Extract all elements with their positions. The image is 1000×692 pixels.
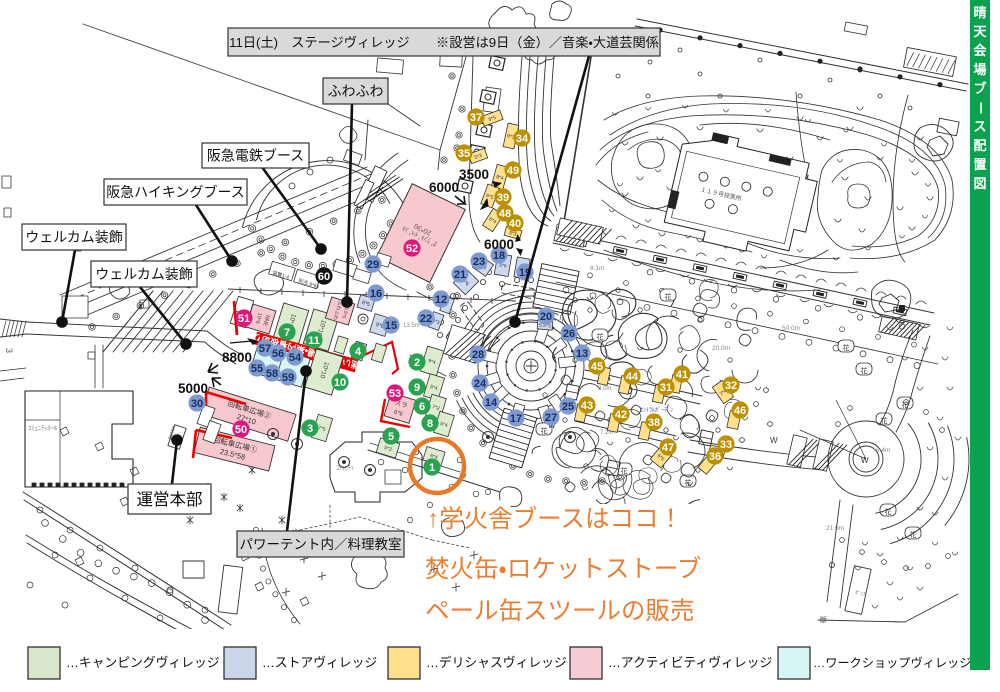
svg-text:ｺﾐｭﾆﾃｨﾎｰﾙ: ｺﾐｭﾆﾃｨﾎｰﾙ (28, 424, 58, 432)
svg-text:56: 56 (272, 348, 284, 360)
svg-text:3: 3 (307, 423, 313, 435)
svg-text:運営本部: 運営本部 (137, 490, 203, 509)
svg-text:8: 8 (427, 418, 433, 430)
svg-text:6: 6 (419, 401, 425, 413)
svg-text:33: 33 (720, 439, 732, 451)
svg-text:20: 20 (540, 311, 552, 323)
svg-text:ｺﾐｭﾆﾃｨ: ｺﾐｭﾆﾃｨ (336, 465, 354, 472)
svg-text:W: W (770, 436, 778, 445)
svg-text:51: 51 (238, 313, 250, 325)
svg-text:48: 48 (499, 208, 511, 220)
svg-text:花: 花 (665, 292, 672, 301)
svg-text:花: 花 (597, 332, 604, 341)
svg-text:図: 図 (973, 176, 986, 191)
svg-text:1: 1 (429, 462, 435, 474)
svg-text:2: 2 (414, 357, 420, 369)
svg-text:37: 37 (470, 112, 482, 124)
svg-text:44: 44 (626, 371, 639, 383)
svg-text:24: 24 (474, 378, 487, 390)
svg-text:5: 5 (388, 431, 394, 443)
svg-text:配: 配 (973, 138, 986, 153)
svg-text:11日(土) ステージヴィレッジ ※設営は9日（金）／音楽: 11日(土) ステージヴィレッジ ※設営は9日（金）／音楽・大道芸関係 (229, 34, 659, 50)
svg-text:38: 38 (648, 417, 660, 429)
svg-text:43: 43 (581, 400, 593, 412)
svg-text:6.4m: 6.4m (876, 447, 890, 454)
svg-text:30: 30 (191, 398, 203, 410)
svg-text:50: 50 (235, 424, 247, 436)
svg-text:9: 9 (414, 382, 420, 394)
svg-text:46: 46 (734, 405, 746, 417)
svg-text:41: 41 (676, 369, 688, 381)
svg-text:45: 45 (591, 361, 603, 373)
svg-text:会: 会 (973, 43, 987, 58)
svg-text:20.0m: 20.0m (712, 345, 730, 352)
svg-text:23: 23 (473, 256, 485, 268)
svg-text:6000: 6000 (484, 237, 514, 252)
svg-text:8800: 8800 (222, 350, 252, 365)
svg-text:…キャンピングヴィレッジ: …キャンピングヴィレッジ (66, 655, 220, 670)
svg-text:12: 12 (435, 294, 447, 306)
svg-text:49: 49 (507, 165, 519, 177)
svg-text:花: 花 (685, 478, 692, 487)
svg-text:ペール缶スツールの販売: ペール缶スツールの販売 (425, 597, 695, 625)
svg-text:57: 57 (259, 343, 271, 355)
svg-text:14: 14 (485, 397, 498, 409)
svg-text:↑学火舎ブースはココ！: ↑学火舎ブースはココ！ (427, 505, 683, 533)
svg-text:花: 花 (621, 466, 628, 475)
svg-text:6000: 6000 (429, 180, 459, 195)
svg-text:32: 32 (725, 380, 737, 392)
svg-text:21.0m: 21.0m (826, 525, 844, 532)
svg-text:10: 10 (334, 377, 346, 389)
svg-text:3: 3 (4, 348, 14, 353)
svg-text:ス: ス (973, 119, 986, 134)
svg-text:28: 28 (472, 349, 484, 361)
svg-text:55: 55 (251, 363, 263, 375)
svg-text:阪急電鉄ブース: 阪急電鉄ブース (207, 148, 304, 164)
svg-text:パワーテント内／料理教室: パワーテント内／料理教室 (240, 537, 402, 552)
svg-text:16: 16 (370, 288, 382, 300)
svg-text:8.1m: 8.1m (590, 265, 604, 272)
svg-text:場: 場 (973, 62, 986, 77)
svg-text:…アクティビティヴィレッジ: …アクティビティヴィレッジ (608, 655, 772, 670)
svg-text:花: 花 (843, 343, 850, 352)
svg-text:置: 置 (973, 157, 986, 172)
svg-text:47: 47 (662, 442, 674, 454)
svg-text:54: 54 (289, 352, 302, 364)
svg-text:晴: 晴 (973, 5, 986, 20)
svg-text:3500: 3500 (459, 167, 489, 182)
svg-text:36: 36 (709, 451, 721, 463)
svg-text:59: 59 (282, 372, 294, 384)
svg-text:22: 22 (420, 313, 432, 325)
svg-text:25: 25 (562, 401, 574, 413)
svg-text:5000: 5000 (178, 381, 208, 396)
svg-text:4: 4 (355, 346, 362, 358)
svg-text:焚火缶・ロケットストーブ: 焚火缶・ロケットストーブ (425, 555, 701, 583)
svg-text:29: 29 (367, 259, 379, 271)
svg-text:13.5m: 13.5m (403, 323, 420, 329)
svg-text:21: 21 (454, 269, 466, 281)
svg-text:60: 60 (318, 271, 330, 283)
svg-text:…デリシャスヴィレッジ: …デリシャスヴィレッジ (426, 655, 567, 670)
svg-text:阪急ハイキングブース: 阪急ハイキングブース (106, 184, 245, 200)
svg-text:…ワークショップヴィレッジ: …ワークショップヴィレッジ (813, 655, 971, 670)
svg-text:53: 53 (389, 388, 401, 400)
svg-text:ふわふわ: ふわふわ (328, 83, 384, 99)
svg-text:13: 13 (576, 348, 588, 360)
svg-text:39: 39 (497, 192, 509, 204)
svg-text:35: 35 (458, 148, 470, 160)
svg-text:花: 花 (861, 366, 868, 375)
svg-text:17: 17 (510, 413, 522, 425)
svg-text:7: 7 (284, 327, 290, 339)
svg-text:ー: ー (973, 101, 988, 114)
svg-text:ブ: ブ (973, 81, 986, 96)
svg-text:27: 27 (545, 412, 557, 424)
svg-text:…ストアヴィレッジ: …ストアヴィレッジ (262, 655, 377, 670)
svg-text:58: 58 (266, 368, 278, 380)
svg-text:15: 15 (385, 320, 397, 332)
svg-text:花: 花 (541, 426, 548, 435)
svg-text:42: 42 (615, 409, 627, 421)
svg-text:52: 52 (406, 243, 418, 255)
svg-text:31: 31 (660, 382, 672, 394)
svg-text:11: 11 (308, 335, 320, 347)
svg-text:26: 26 (563, 328, 575, 340)
svg-text:50.0m: 50.0m (782, 325, 800, 332)
svg-text:ウェルカム装飾: ウェルカム装飾 (95, 266, 193, 282)
svg-text:34: 34 (516, 133, 529, 145)
svg-text:天: 天 (973, 24, 987, 39)
svg-text:斷: 斷 (820, 615, 827, 624)
svg-text:ウェルカム装飾: ウェルカム装飾 (25, 229, 123, 245)
